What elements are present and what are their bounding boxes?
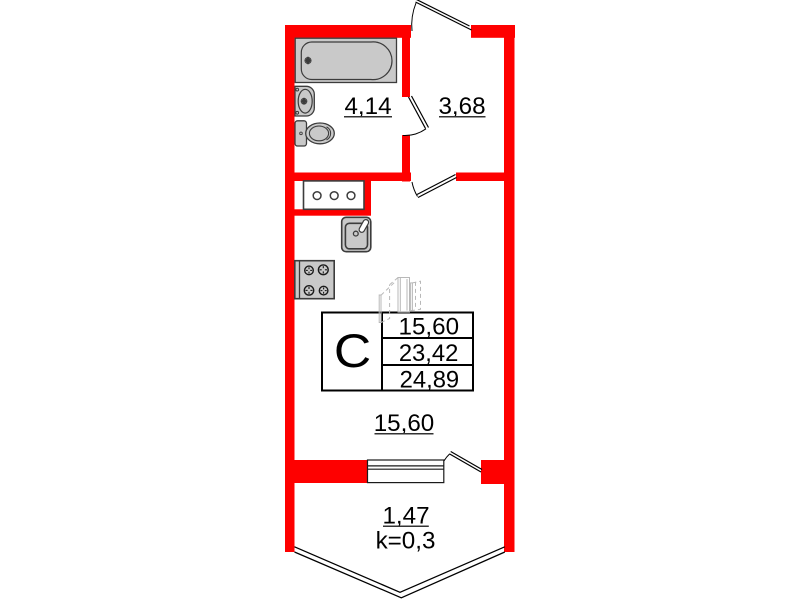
svg-text:15,60: 15,60 xyxy=(399,313,460,340)
svg-text:23,42: 23,42 xyxy=(399,340,459,367)
svg-text:1,47: 1,47 xyxy=(382,502,429,529)
svg-text:С: С xyxy=(334,325,371,377)
svg-text:24,89: 24,89 xyxy=(400,367,460,394)
svg-text:k=0,3: k=0,3 xyxy=(376,528,436,555)
svg-text:15,60: 15,60 xyxy=(374,410,435,437)
